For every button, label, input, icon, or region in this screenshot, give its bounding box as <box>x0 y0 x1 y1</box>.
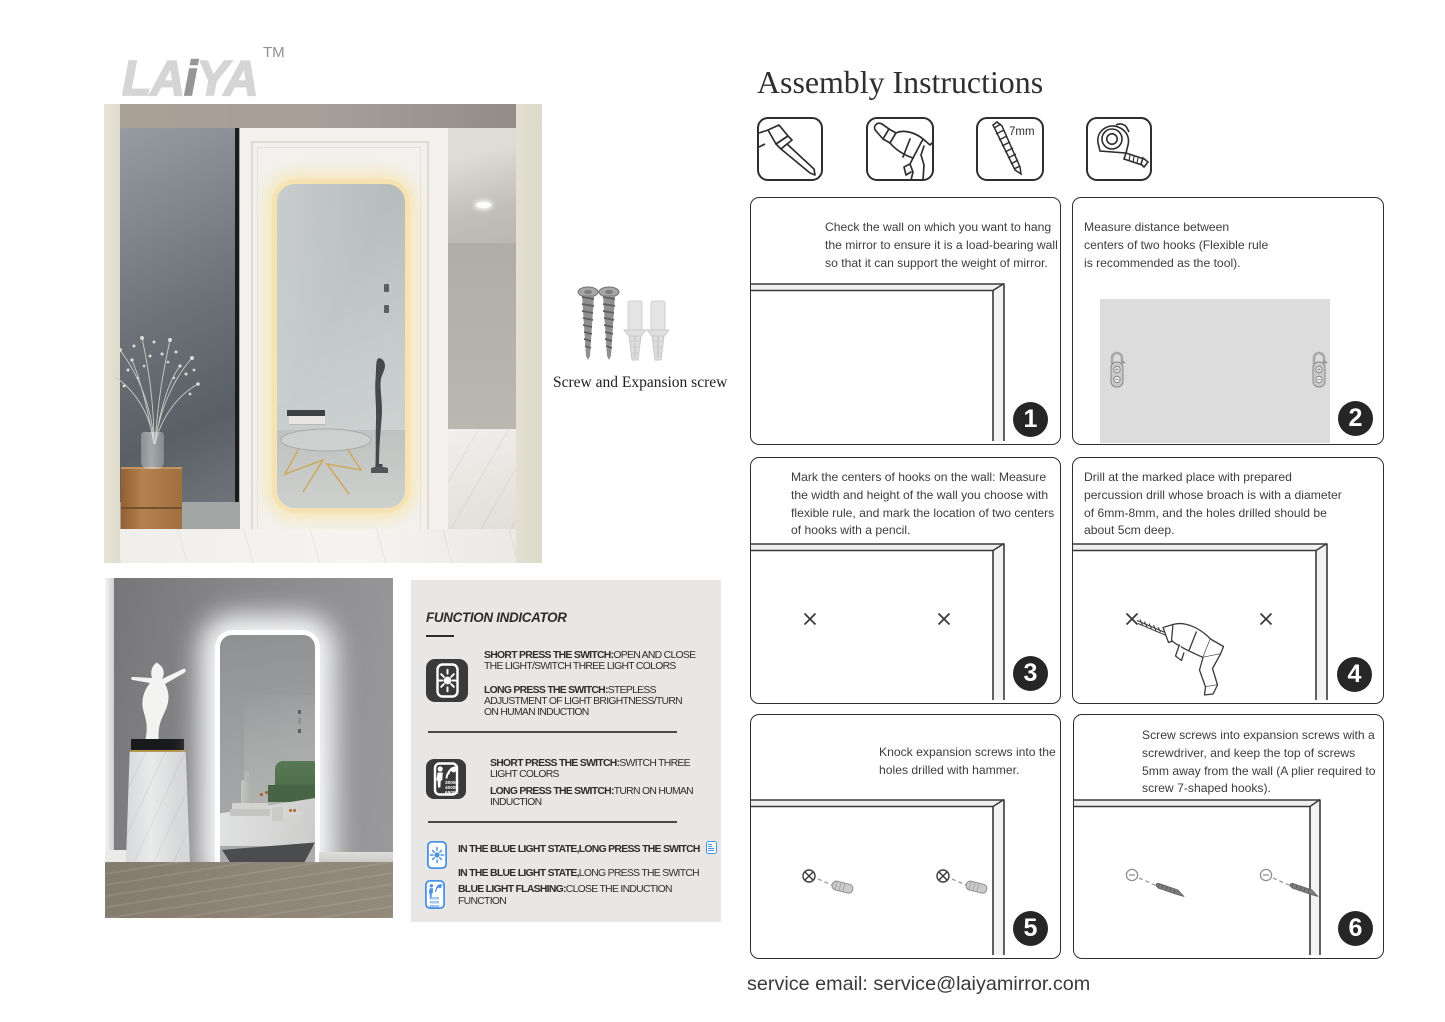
svg-text:6500K: 6500K <box>445 790 459 795</box>
svg-text:6500K: 6500K <box>430 905 441 909</box>
svg-text:7mm: 7mm <box>1009 126 1035 138</box>
